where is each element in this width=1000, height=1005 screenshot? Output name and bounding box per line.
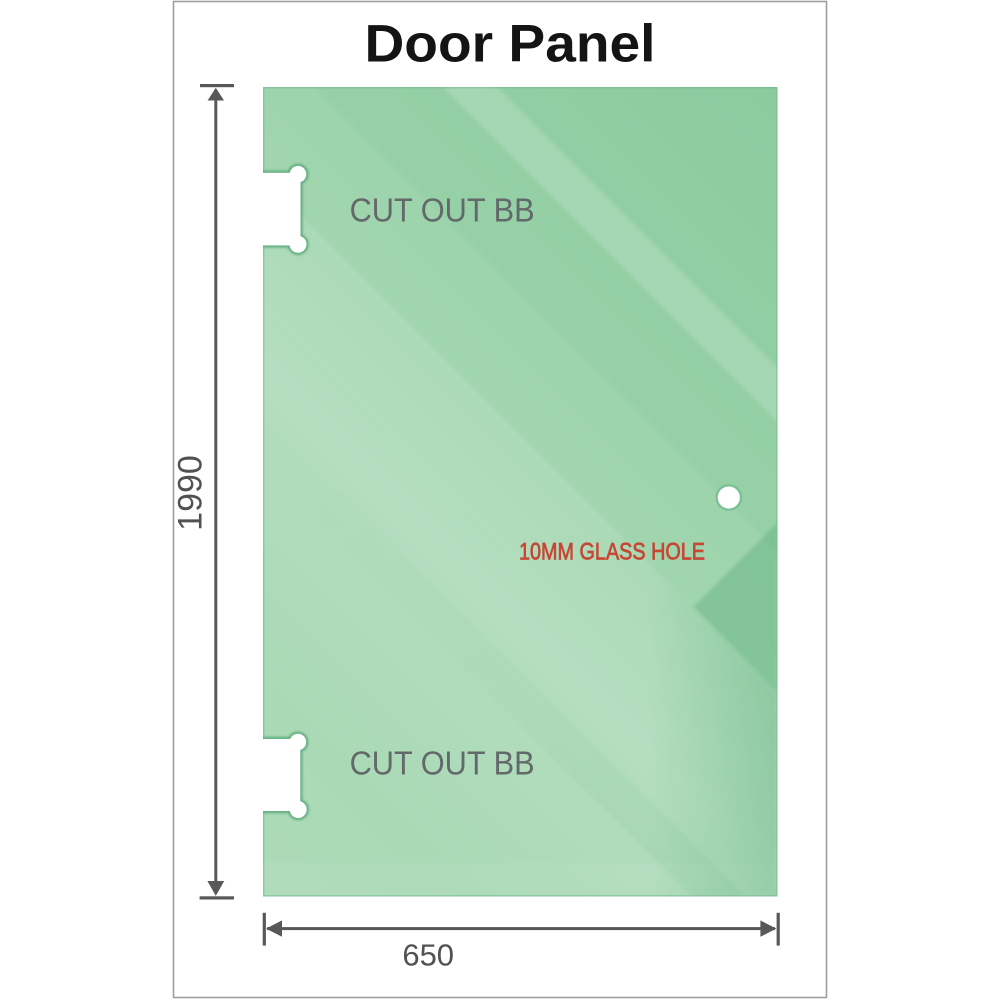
svg-text:Door Panel: Door Panel bbox=[365, 15, 656, 74]
svg-text:650: 650 bbox=[402, 938, 454, 973]
svg-text:CUT OUT BB: CUT OUT BB bbox=[350, 746, 535, 783]
svg-text:10MM GLASS HOLE: 10MM GLASS HOLE bbox=[519, 539, 705, 566]
svg-text:1990: 1990 bbox=[172, 455, 210, 531]
svg-text:CUT OUT BB: CUT OUT BB bbox=[350, 192, 535, 229]
